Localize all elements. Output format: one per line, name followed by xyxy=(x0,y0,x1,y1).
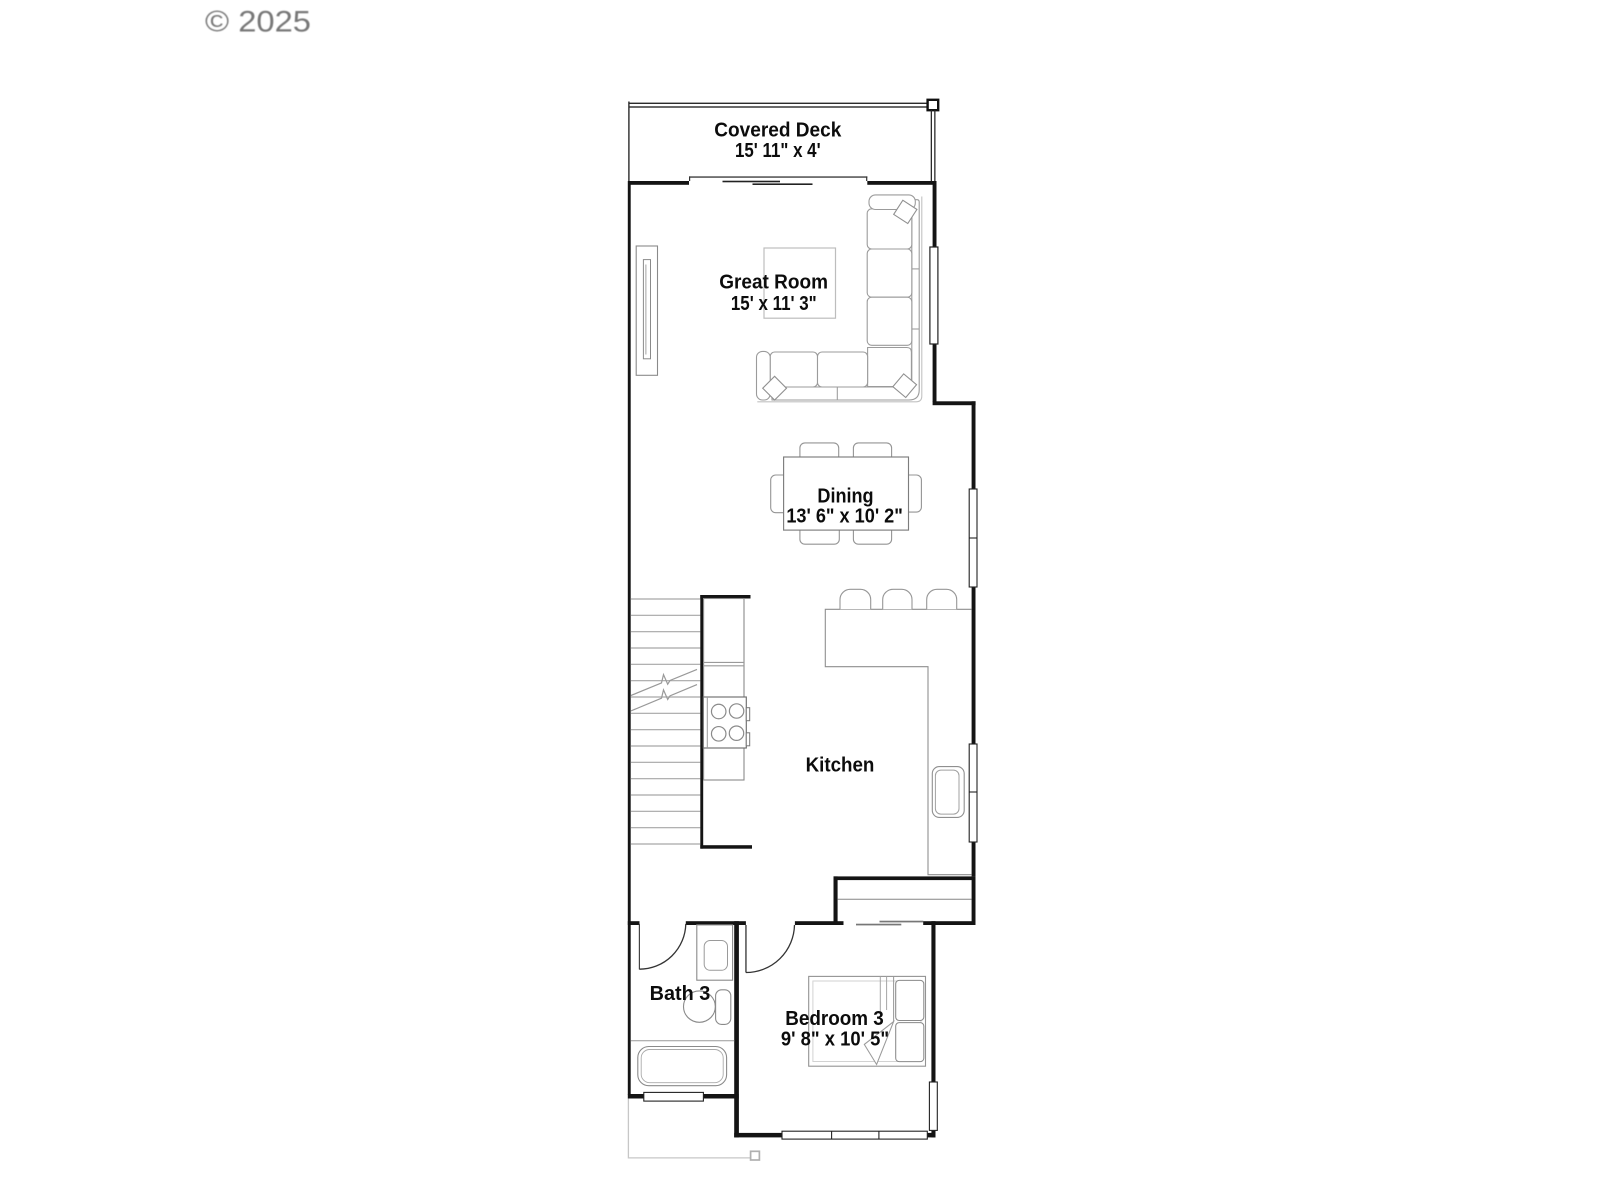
svg-text:13' 6" x 10' 2": 13' 6" x 10' 2" xyxy=(786,504,903,527)
svg-text:Kitchen: Kitchen xyxy=(806,753,875,776)
svg-text:© 2025: © 2025 xyxy=(205,6,311,39)
svg-text:Bath 3: Bath 3 xyxy=(650,982,711,1005)
svg-text:15' x 11' 3": 15' x 11' 3" xyxy=(731,292,817,315)
svg-text:15' 11" x 4': 15' 11" x 4' xyxy=(735,139,821,162)
svg-text:Great Room: Great Room xyxy=(719,270,828,293)
svg-text:9' 8" x 10' 5": 9' 8" x 10' 5" xyxy=(781,1027,889,1050)
svg-text:Bedroom 3: Bedroom 3 xyxy=(785,1007,884,1030)
svg-text:Covered Deck: Covered Deck xyxy=(714,118,842,141)
